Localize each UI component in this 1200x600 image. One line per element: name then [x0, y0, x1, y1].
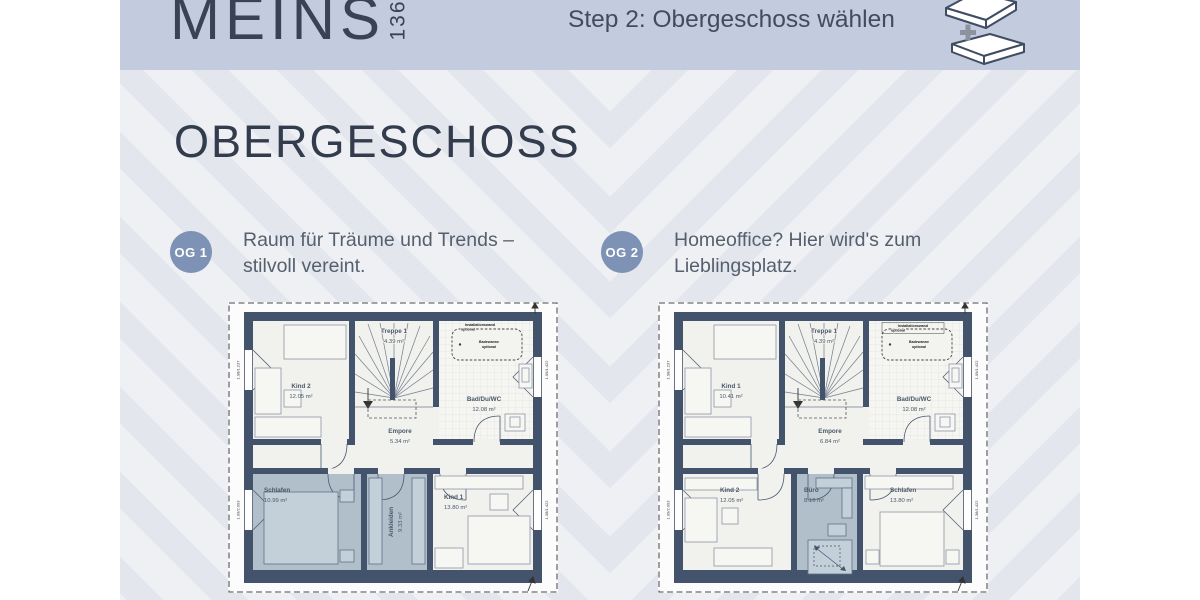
room-area: 12.08 m² [902, 407, 925, 413]
og1-badge: OG 1 [170, 231, 212, 273]
room-label: Bad/Du/WC [897, 396, 932, 403]
room-label: Kind 1 [444, 494, 464, 501]
room-area: 10.41 m² [719, 394, 742, 400]
brand-logo: MEINS [170, 0, 385, 53]
og2-description: Homeoffice? Hier wird's zum Lieblingspla… [674, 227, 921, 279]
room-label: Schlafen [264, 487, 290, 494]
room-label: Bad/Du/WC [467, 396, 502, 403]
stair-spine-wall [820, 358, 825, 400]
content-strip: MEINS 136 Step 2: Obergeschoss wählen [120, 0, 1080, 600]
house-floor-plus-icon [932, 0, 1032, 70]
note-badewanne: Badewanne [479, 340, 499, 344]
dimension-label: 1.09/1.422 [544, 360, 549, 380]
stair-spine-wall [390, 358, 395, 400]
room-area: 9.33 m² [398, 512, 404, 532]
room-label: Kind 1 [721, 383, 741, 390]
dimension-label: 1.38/1.422 [974, 500, 979, 520]
room-area: 10.99 m² [264, 498, 287, 504]
note-installationswand: Installationswand [465, 323, 495, 327]
note-optional: optional [461, 328, 475, 332]
configurator-page: MEINS 136 Step 2: Obergeschoss wählen [0, 0, 1200, 600]
room-area: 4.39 m² [814, 339, 834, 345]
dimension-label: 1.98/1.237 [236, 360, 241, 380]
room-area: 5.34 m² [390, 439, 410, 445]
page-title: OBERGESCHOSS [174, 116, 581, 168]
room-label: Kind 2 [291, 383, 311, 390]
room-area: 6.84 m² [820, 439, 840, 445]
note-badewanne: Badewanne [909, 340, 929, 344]
dimension-label: 1.98/1.237 [666, 360, 671, 380]
og2-badge: OG 2 [601, 231, 643, 273]
step-title: Step 2: Obergeschoss wählen [568, 6, 895, 34]
room-label: Kind 2 [720, 487, 740, 494]
dimension-label: 1.09/2.093 [236, 500, 241, 520]
room-area: 13.80 m² [890, 498, 913, 504]
room-area: 12.05 m² [289, 394, 312, 400]
header-bar: MEINS 136 Step 2: Obergeschoss wählen [120, 0, 1080, 70]
room-label: Schlafen [890, 487, 916, 494]
room-label: Empore [388, 428, 412, 435]
dimension-label: 1.09/1.422 [974, 360, 979, 380]
note-optional: optional [891, 329, 905, 333]
dimension-label: 1.09/2.093 [666, 500, 671, 520]
dimension-label: 1.38/1.422 [544, 500, 549, 520]
room-label: Ankleiden [388, 507, 395, 537]
og1-description: Raum für Träume und Trends – stilvoll ve… [243, 227, 514, 279]
room-label: Büro [804, 487, 819, 494]
room-area: 4.39 m² [384, 339, 404, 345]
room-area: 12.05 m² [720, 498, 743, 504]
note-installationswand: Installationswand [898, 324, 928, 328]
room-area: 13.80 m² [444, 505, 467, 511]
room-label: Treppe 1 [381, 328, 407, 335]
room-label: Empore [818, 428, 842, 435]
brand-logo-number: 136 [387, 0, 411, 41]
note-optional: optional [912, 345, 926, 349]
room-area: 12.08 m² [472, 407, 495, 413]
room-area: 8.16 m² [804, 498, 824, 504]
floorplan-og1[interactable]: Kind 2 12.05 m² Treppe 1 4.39 m² Bad/Du/… [228, 302, 558, 593]
note-optional: optional [482, 345, 496, 349]
room-label: Treppe 1 [811, 328, 837, 335]
floorplan-og2[interactable]: Kind 1 10.41 m² Treppe 1 4.39 m² Bad/Du/… [658, 302, 988, 593]
